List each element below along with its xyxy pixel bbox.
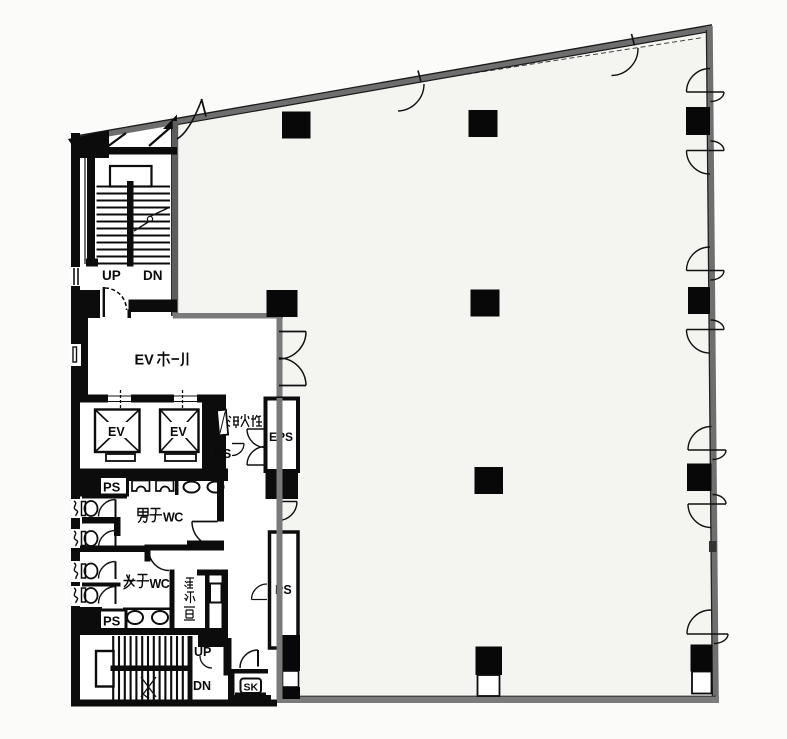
svg-text:DN: DN xyxy=(193,679,211,693)
svg-text:SK: SK xyxy=(244,682,259,694)
svg-text:DN: DN xyxy=(143,268,163,283)
svg-text:EV: EV xyxy=(135,353,155,369)
svg-text:PS: PS xyxy=(214,446,232,461)
svg-text:WC: WC xyxy=(150,577,170,591)
svg-text:EV: EV xyxy=(108,425,125,439)
svg-text:PS: PS xyxy=(103,614,121,629)
svg-text:EV: EV xyxy=(170,425,187,439)
svg-text:UP: UP xyxy=(194,645,211,659)
svg-text:PS: PS xyxy=(103,480,121,495)
svg-text:WC: WC xyxy=(163,511,183,525)
svg-text:UP: UP xyxy=(102,268,121,283)
